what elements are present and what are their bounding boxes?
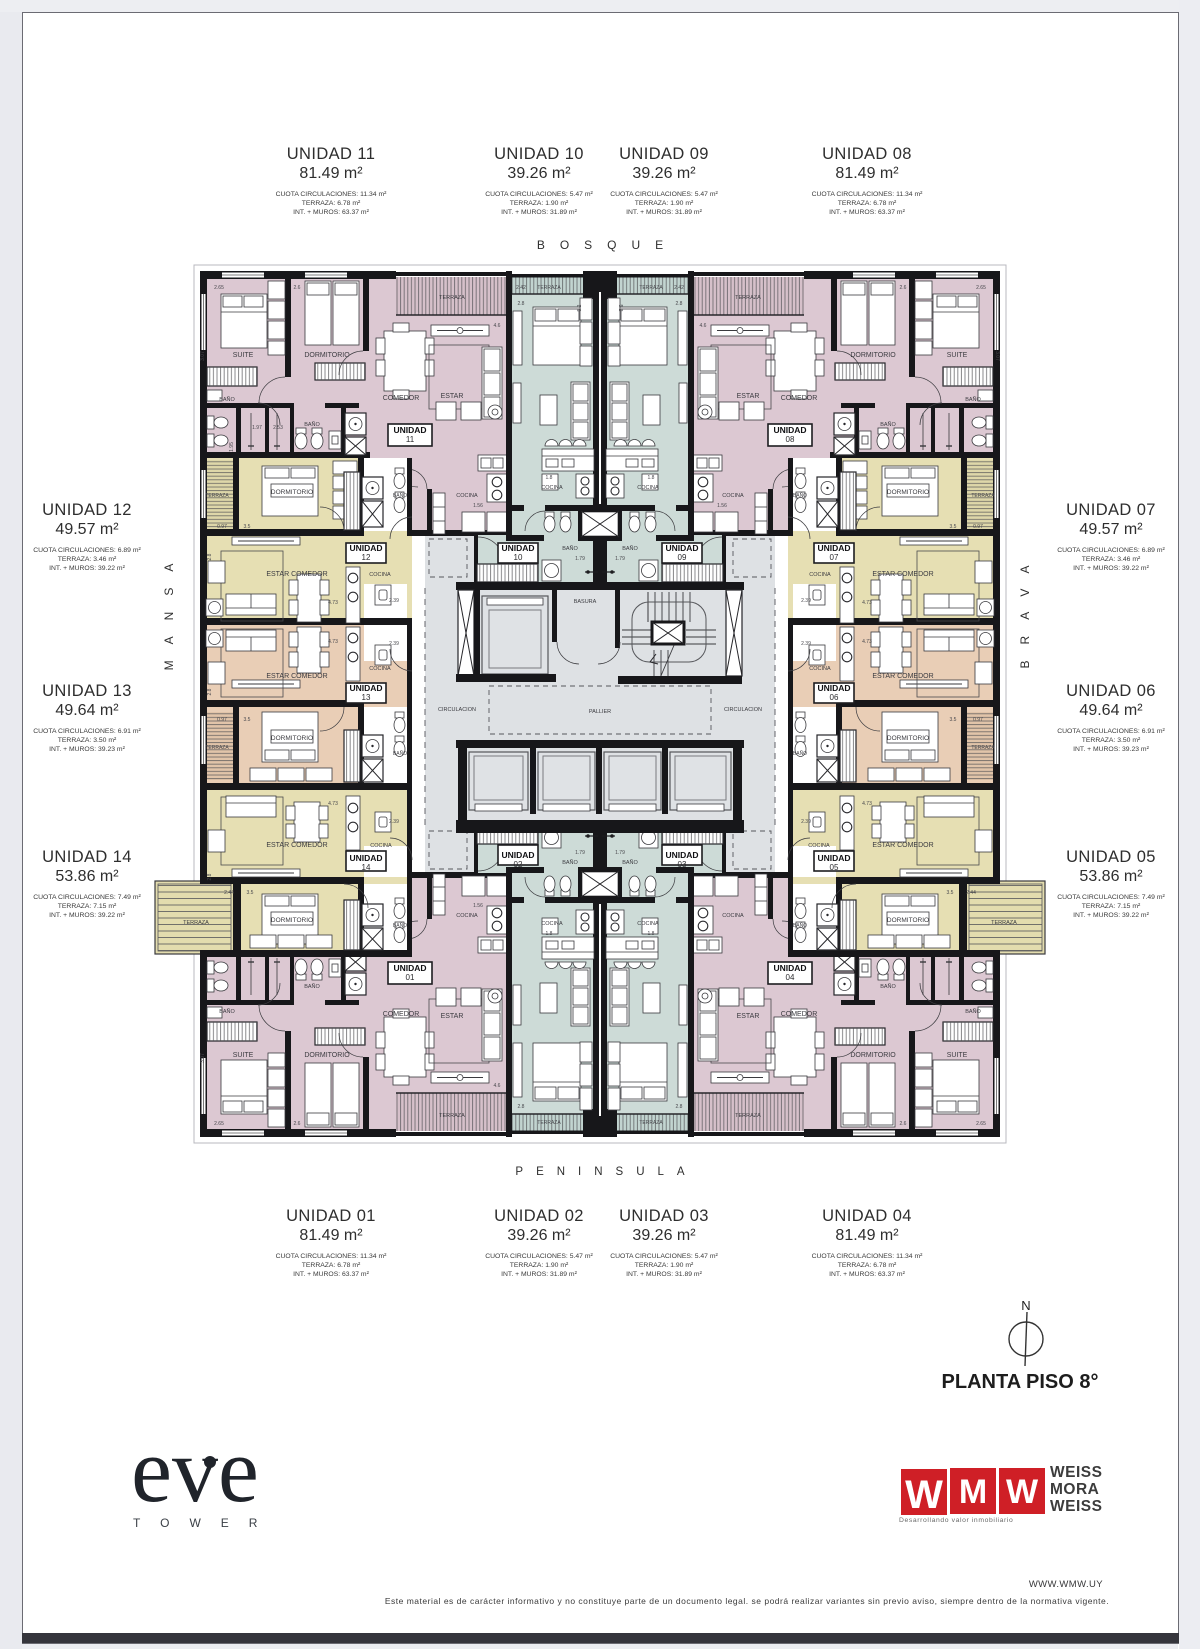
svg-text:DORMITORIO: DORMITORIO — [887, 489, 929, 496]
svg-text:UNIDAD: UNIDAD — [817, 853, 850, 863]
svg-text:BAÑO: BAÑO — [622, 545, 638, 552]
svg-text:2.39: 2.39 — [389, 641, 399, 647]
svg-text:BAÑO: BAÑO — [393, 922, 407, 929]
svg-text:BAÑO: BAÑO — [219, 1008, 235, 1015]
svg-text:4.6: 4.6 — [700, 323, 707, 329]
svg-text:2.6: 2.6 — [900, 285, 907, 291]
svg-text:1.8: 1.8 — [648, 931, 655, 937]
svg-text:TERRAZA: TERRAZA — [971, 745, 995, 751]
svg-text:DORMITORIO: DORMITORIO — [304, 1052, 350, 1059]
svg-text:1.79: 1.79 — [615, 850, 625, 856]
svg-text:4.73: 4.73 — [862, 639, 872, 645]
svg-text:TERRAZA: TERRAZA — [639, 285, 663, 291]
svg-text:01: 01 — [406, 973, 415, 982]
svg-text:SUITE: SUITE — [947, 352, 968, 359]
svg-text:3.07: 3.07 — [200, 1053, 206, 1063]
svg-text:12: 12 — [362, 553, 371, 562]
svg-text:4.73: 4.73 — [862, 600, 872, 606]
svg-text:TERRAZA: TERRAZA — [735, 295, 761, 301]
svg-text:CIRCULACION: CIRCULACION — [438, 707, 476, 713]
svg-text:07: 07 — [830, 553, 839, 562]
svg-text:4.6: 4.6 — [494, 1083, 501, 1089]
svg-text:2.39: 2.39 — [801, 819, 811, 825]
svg-text:TERRAZA: TERRAZA — [991, 920, 1017, 926]
svg-text:05: 05 — [830, 863, 839, 872]
svg-text:DORMITORIO: DORMITORIO — [271, 489, 313, 496]
svg-text:0.97: 0.97 — [973, 524, 983, 530]
svg-text:UNIDAD: UNIDAD — [349, 543, 382, 553]
svg-text:PALLIER: PALLIER — [589, 709, 611, 715]
svg-text:TERRAZA: TERRAZA — [439, 1113, 465, 1119]
svg-text:ESTAR COMEDOR: ESTAR COMEDOR — [872, 571, 933, 578]
svg-text:UNIDAD: UNIDAD — [817, 543, 850, 553]
svg-text:COCINA: COCINA — [808, 843, 830, 849]
svg-text:SUITE: SUITE — [233, 352, 254, 359]
svg-text:COCINA: COCINA — [456, 913, 478, 919]
svg-text:3.07: 3.07 — [994, 351, 1000, 361]
svg-text:UNIDAD: UNIDAD — [665, 543, 698, 553]
svg-text:DORMITORIO: DORMITORIO — [887, 735, 929, 742]
svg-text:COCINA: COCINA — [369, 666, 391, 672]
svg-text:3.5: 3.5 — [244, 524, 251, 530]
svg-text:1.56: 1.56 — [717, 503, 727, 509]
svg-text:1.79: 1.79 — [575, 556, 585, 562]
svg-text:COCINA: COCINA — [722, 493, 744, 499]
svg-text:2.65: 2.65 — [976, 1121, 986, 1127]
svg-text:11: 11 — [406, 435, 415, 444]
svg-text:UNIDAD: UNIDAD — [349, 683, 382, 693]
svg-text:ESTAR COMEDOR: ESTAR COMEDOR — [266, 842, 327, 849]
svg-text:TERRAZA: TERRAZA — [205, 745, 229, 751]
svg-text:BAÑO: BAÑO — [304, 983, 320, 990]
svg-text:BAÑO: BAÑO — [965, 396, 981, 403]
svg-text:1.97: 1.97 — [252, 425, 262, 431]
svg-text:1.95: 1.95 — [229, 442, 235, 452]
svg-text:COMEDOR: COMEDOR — [383, 395, 420, 402]
svg-text:UNIDAD: UNIDAD — [817, 683, 850, 693]
svg-text:COCINA: COCINA — [722, 913, 744, 919]
svg-text:5.2: 5.2 — [577, 304, 583, 311]
svg-text:5.2: 5.2 — [617, 305, 623, 312]
svg-text:2.39: 2.39 — [801, 598, 811, 604]
svg-text:DORMITORIO: DORMITORIO — [850, 352, 896, 359]
svg-text:2.44: 2.44 — [224, 890, 234, 896]
svg-text:COCINA: COCINA — [456, 493, 478, 499]
svg-text:BAÑO: BAÑO — [965, 1008, 981, 1015]
svg-text:0.97: 0.97 — [217, 717, 227, 723]
svg-text:ESTAR: ESTAR — [441, 1013, 464, 1020]
svg-text:2.8: 2.8 — [676, 301, 683, 307]
svg-text:1.8: 1.8 — [546, 931, 553, 937]
svg-text:06: 06 — [830, 693, 839, 702]
svg-text:0.97: 0.97 — [217, 524, 227, 530]
svg-text:UNIDAD: UNIDAD — [393, 425, 426, 435]
svg-text:TERRAZA: TERRAZA — [183, 920, 209, 926]
svg-text:COMEDOR: COMEDOR — [781, 395, 818, 402]
svg-text:2.8: 2.8 — [207, 688, 213, 695]
svg-text:1.56: 1.56 — [473, 903, 483, 909]
svg-text:2.8: 2.8 — [518, 1104, 525, 1110]
svg-text:BAÑO: BAÑO — [562, 545, 578, 552]
svg-text:4.6: 4.6 — [494, 323, 501, 329]
svg-text:2.6: 2.6 — [294, 285, 301, 291]
svg-text:08: 08 — [786, 435, 795, 444]
svg-text:2.44: 2.44 — [966, 890, 976, 896]
svg-text:3.5: 3.5 — [247, 890, 254, 896]
svg-text:TERRAZA: TERRAZA — [639, 1120, 663, 1126]
svg-text:ESTAR COMEDOR: ESTAR COMEDOR — [872, 842, 933, 849]
svg-text:2.6: 2.6 — [294, 1121, 301, 1127]
svg-text:3.5: 3.5 — [947, 890, 954, 896]
svg-text:03: 03 — [678, 860, 687, 869]
svg-text:COMEDOR: COMEDOR — [781, 1011, 818, 1018]
svg-text:1.79: 1.79 — [615, 556, 625, 562]
svg-text:4.73: 4.73 — [328, 639, 338, 645]
svg-text:2.8: 2.8 — [518, 301, 525, 307]
svg-text:2.8: 2.8 — [676, 1104, 683, 1110]
svg-text:14: 14 — [362, 863, 371, 872]
svg-text:DORMITORIO: DORMITORIO — [271, 917, 313, 924]
svg-text:BAÑO: BAÑO — [880, 983, 896, 990]
svg-text:COCINA: COCINA — [809, 666, 831, 672]
svg-text:COCINA: COCINA — [637, 921, 659, 927]
svg-text:ESTAR: ESTAR — [737, 393, 760, 400]
svg-text:09: 09 — [678, 553, 687, 562]
svg-text:UNIDAD: UNIDAD — [773, 963, 806, 973]
svg-text:02: 02 — [514, 860, 523, 869]
svg-text:DORMITORIO: DORMITORIO — [304, 352, 350, 359]
svg-text:ESTAR COMEDOR: ESTAR COMEDOR — [266, 673, 327, 680]
svg-text:UNIDAD: UNIDAD — [349, 853, 382, 863]
svg-text:BAÑO: BAÑO — [562, 859, 578, 866]
svg-text:UNIDAD: UNIDAD — [501, 543, 534, 553]
svg-text:UNIDAD: UNIDAD — [773, 425, 806, 435]
svg-text:UNIDAD: UNIDAD — [665, 850, 698, 860]
svg-text:4.73: 4.73 — [328, 801, 338, 807]
svg-text:2.65: 2.65 — [214, 285, 224, 291]
svg-text:3.5: 3.5 — [950, 524, 957, 530]
svg-text:TERRAZA: TERRAZA — [205, 493, 229, 499]
svg-text:COCINA: COCINA — [369, 572, 391, 578]
svg-text:BAÑO: BAÑO — [393, 492, 407, 499]
svg-text:3.5: 3.5 — [244, 717, 251, 723]
svg-text:ESTAR COMEDOR: ESTAR COMEDOR — [872, 673, 933, 680]
svg-text:COCINA: COCINA — [541, 921, 563, 927]
svg-text:COCINA: COCINA — [809, 572, 831, 578]
svg-text:2.65: 2.65 — [976, 285, 986, 291]
svg-text:2.42: 2.42 — [674, 285, 684, 291]
svg-text:3.07: 3.07 — [200, 351, 206, 361]
svg-text:COCINA: COCINA — [637, 485, 659, 491]
svg-text:BAÑO: BAÑO — [793, 750, 807, 757]
svg-text:1.79: 1.79 — [575, 850, 585, 856]
svg-text:2.8: 2.8 — [207, 873, 213, 880]
svg-text:DORMITORIO: DORMITORIO — [271, 735, 313, 742]
svg-text:ESTAR COMEDOR: ESTAR COMEDOR — [266, 571, 327, 578]
svg-text:UNIDAD: UNIDAD — [501, 850, 534, 860]
svg-text:1.56: 1.56 — [473, 503, 483, 509]
svg-text:BAÑO: BAÑO — [622, 859, 638, 866]
svg-text:10: 10 — [514, 553, 523, 562]
svg-text:SUITE: SUITE — [947, 1052, 968, 1059]
svg-text:BAÑO: BAÑO — [304, 421, 320, 428]
svg-text:CIRCULACION: CIRCULACION — [724, 707, 762, 713]
svg-text:2.39: 2.39 — [801, 641, 811, 647]
svg-text:2.53: 2.53 — [273, 425, 283, 431]
svg-text:ESTAR: ESTAR — [441, 393, 464, 400]
svg-text:2.8: 2.8 — [207, 553, 213, 560]
svg-text:ESTAR: ESTAR — [737, 1013, 760, 1020]
svg-text:2.65: 2.65 — [214, 1121, 224, 1127]
svg-text:BAÑO: BAÑO — [880, 421, 896, 428]
svg-text:2.42: 2.42 — [516, 285, 526, 291]
svg-text:1.8: 1.8 — [648, 475, 655, 481]
svg-text:2.39: 2.39 — [389, 819, 399, 825]
svg-text:BAÑO: BAÑO — [219, 396, 235, 403]
svg-text:3.5: 3.5 — [950, 717, 957, 723]
svg-text:COCINA: COCINA — [370, 843, 392, 849]
svg-text:TERRAZA: TERRAZA — [971, 493, 995, 499]
svg-text:BAÑO: BAÑO — [793, 922, 807, 929]
svg-text:1.8: 1.8 — [546, 475, 553, 481]
svg-text:DORMITORIO: DORMITORIO — [887, 917, 929, 924]
svg-text:4.73: 4.73 — [328, 600, 338, 606]
svg-text:TERRAZA: TERRAZA — [439, 295, 465, 301]
svg-text:COCINA: COCINA — [541, 485, 563, 491]
svg-text:BASURA: BASURA — [574, 599, 597, 605]
svg-text:BAÑO: BAÑO — [793, 492, 807, 499]
svg-text:TERRAZA: TERRAZA — [537, 285, 561, 291]
svg-text:13: 13 — [362, 693, 371, 702]
svg-text:COMEDOR: COMEDOR — [383, 1011, 420, 1018]
svg-text:TERRAZA: TERRAZA — [735, 1113, 761, 1119]
svg-text:SUITE: SUITE — [233, 1052, 254, 1059]
svg-text:0.97: 0.97 — [973, 717, 983, 723]
svg-text:4.73: 4.73 — [862, 801, 872, 807]
svg-text:BAÑO: BAÑO — [393, 750, 407, 757]
svg-text:TERRAZA: TERRAZA — [537, 1120, 561, 1126]
svg-text:04: 04 — [786, 973, 795, 982]
svg-text:2.6: 2.6 — [900, 1121, 907, 1127]
svg-text:UNIDAD: UNIDAD — [393, 963, 426, 973]
svg-text:2.39: 2.39 — [389, 598, 399, 604]
svg-text:DORMITORIO: DORMITORIO — [850, 1052, 896, 1059]
